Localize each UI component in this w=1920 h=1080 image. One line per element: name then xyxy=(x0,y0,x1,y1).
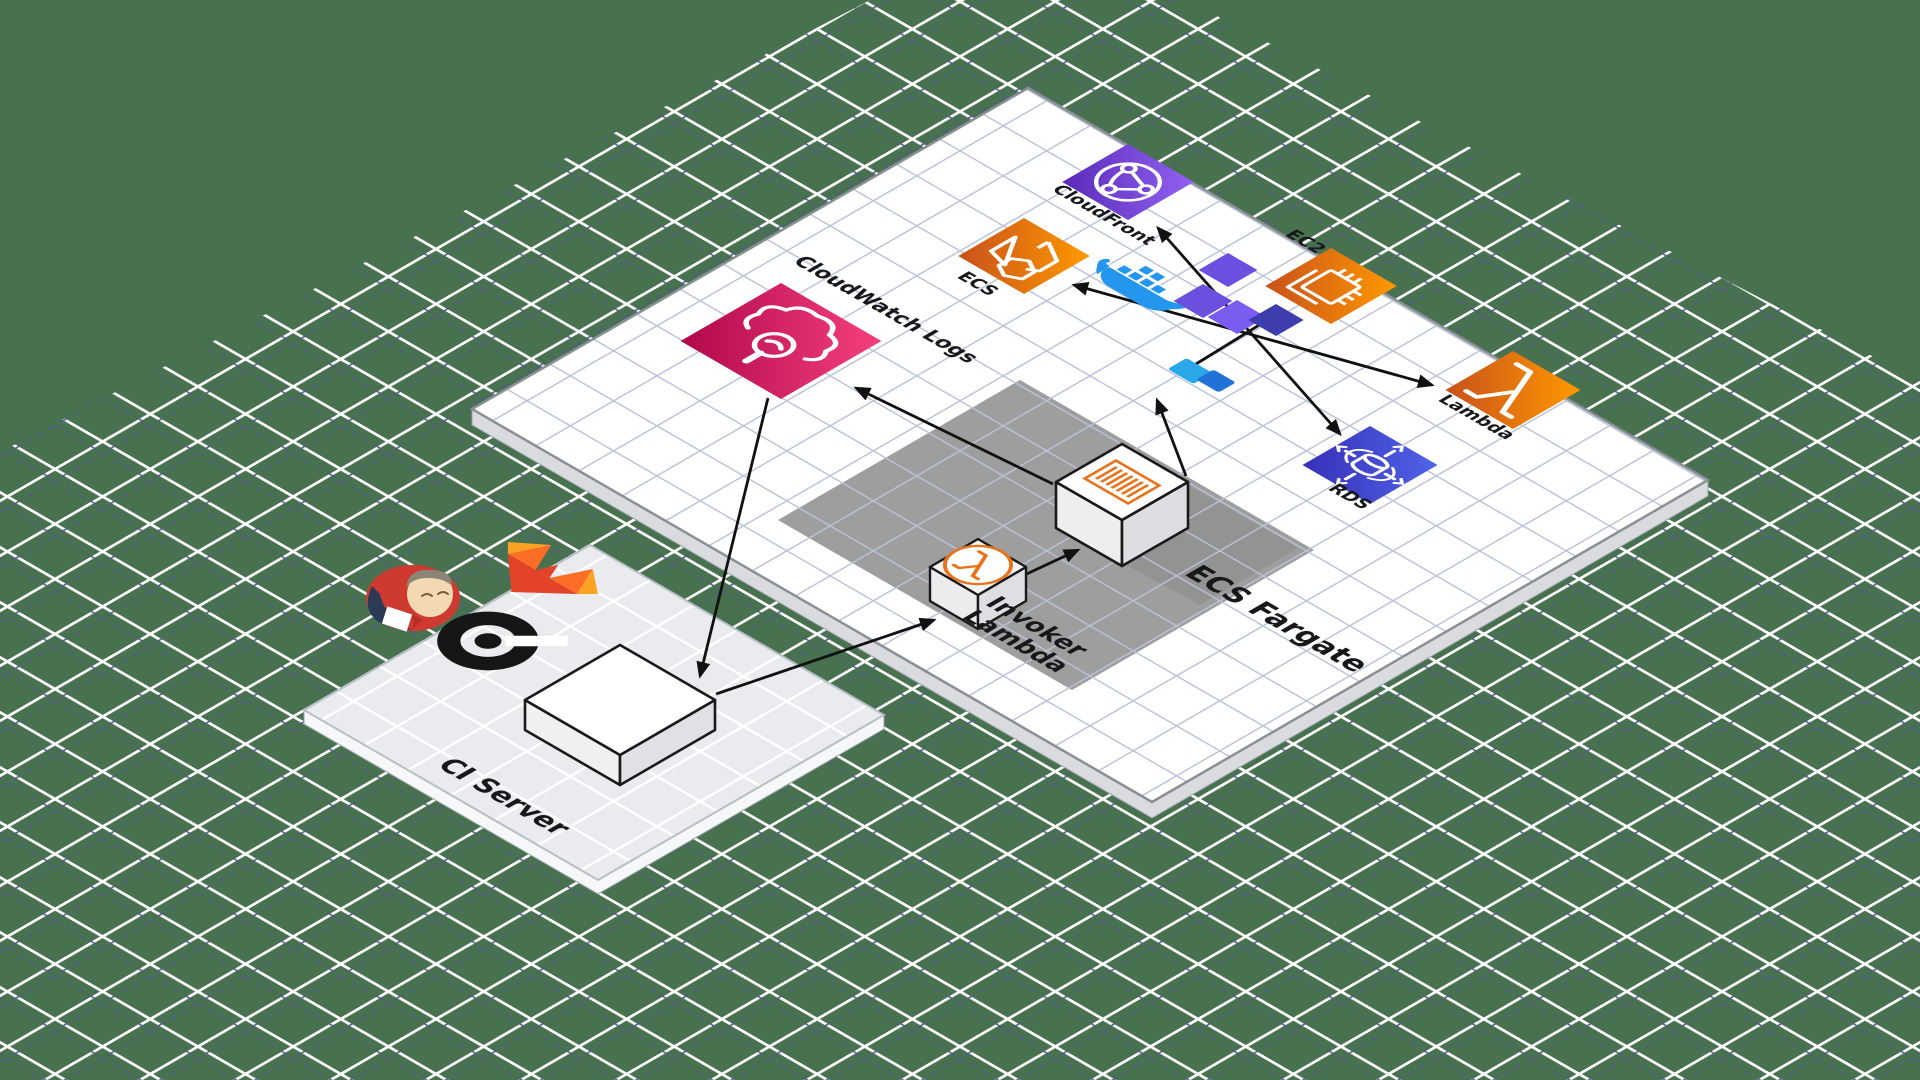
diagram-canvas: CloudWatch Logs CloudFront ECS EC2 Lambd… xyxy=(0,0,1920,1080)
isometric-architecture-diagram: CloudWatch Logs CloudFront ECS EC2 Lambd… xyxy=(0,0,1920,1080)
